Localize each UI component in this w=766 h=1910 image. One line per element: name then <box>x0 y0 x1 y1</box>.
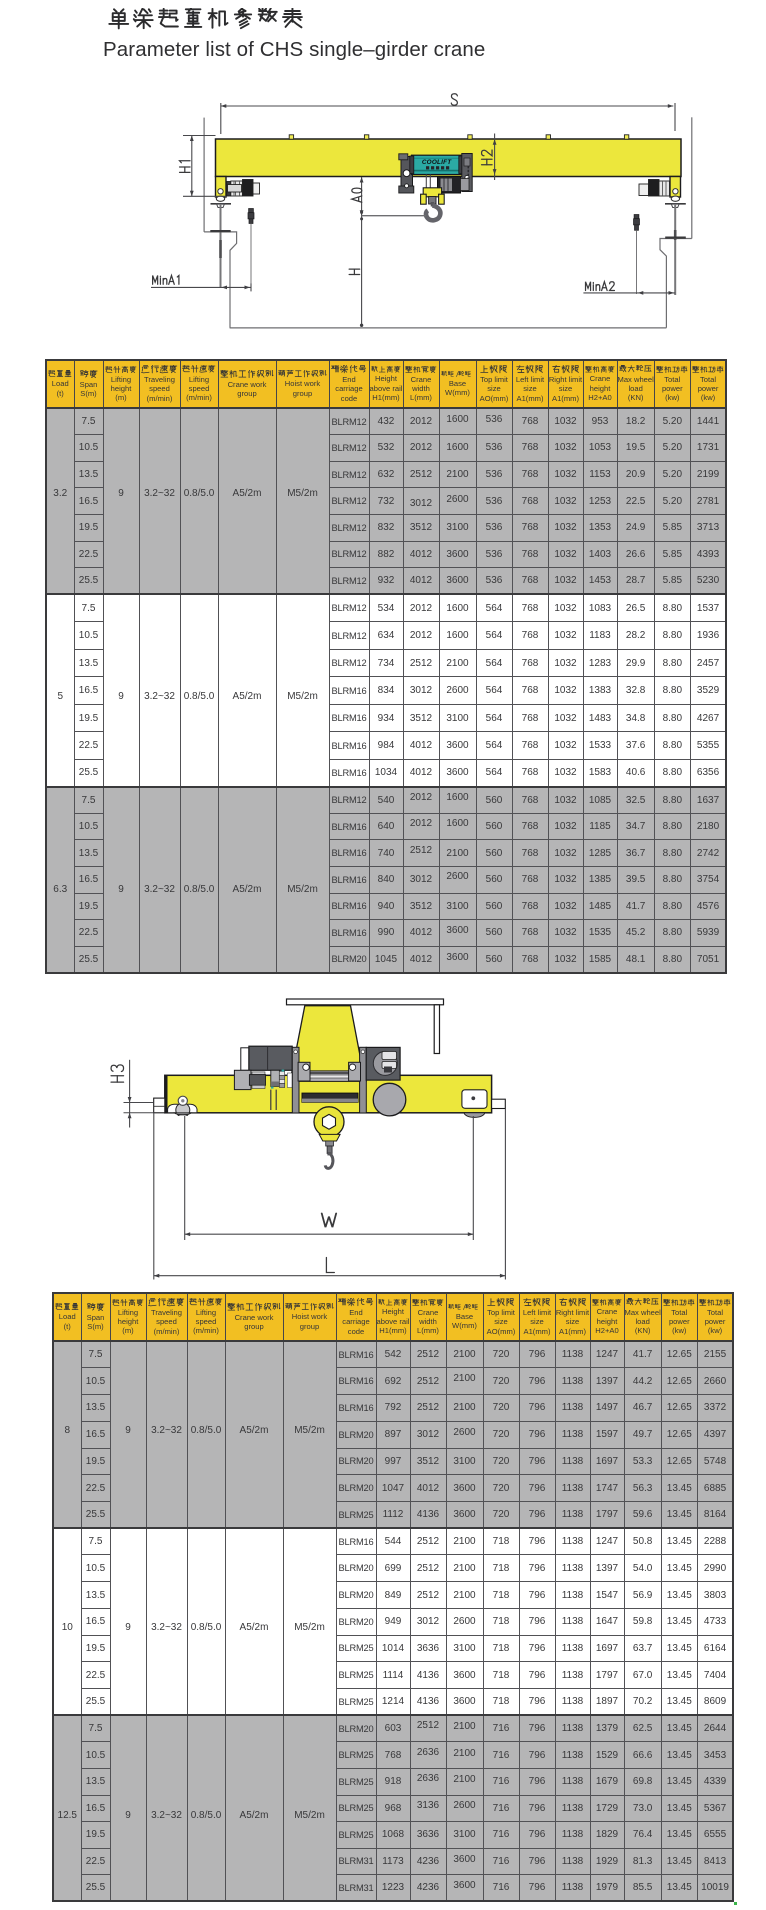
svg-text:COOLIFT: COOLIFT <box>422 159 452 166</box>
